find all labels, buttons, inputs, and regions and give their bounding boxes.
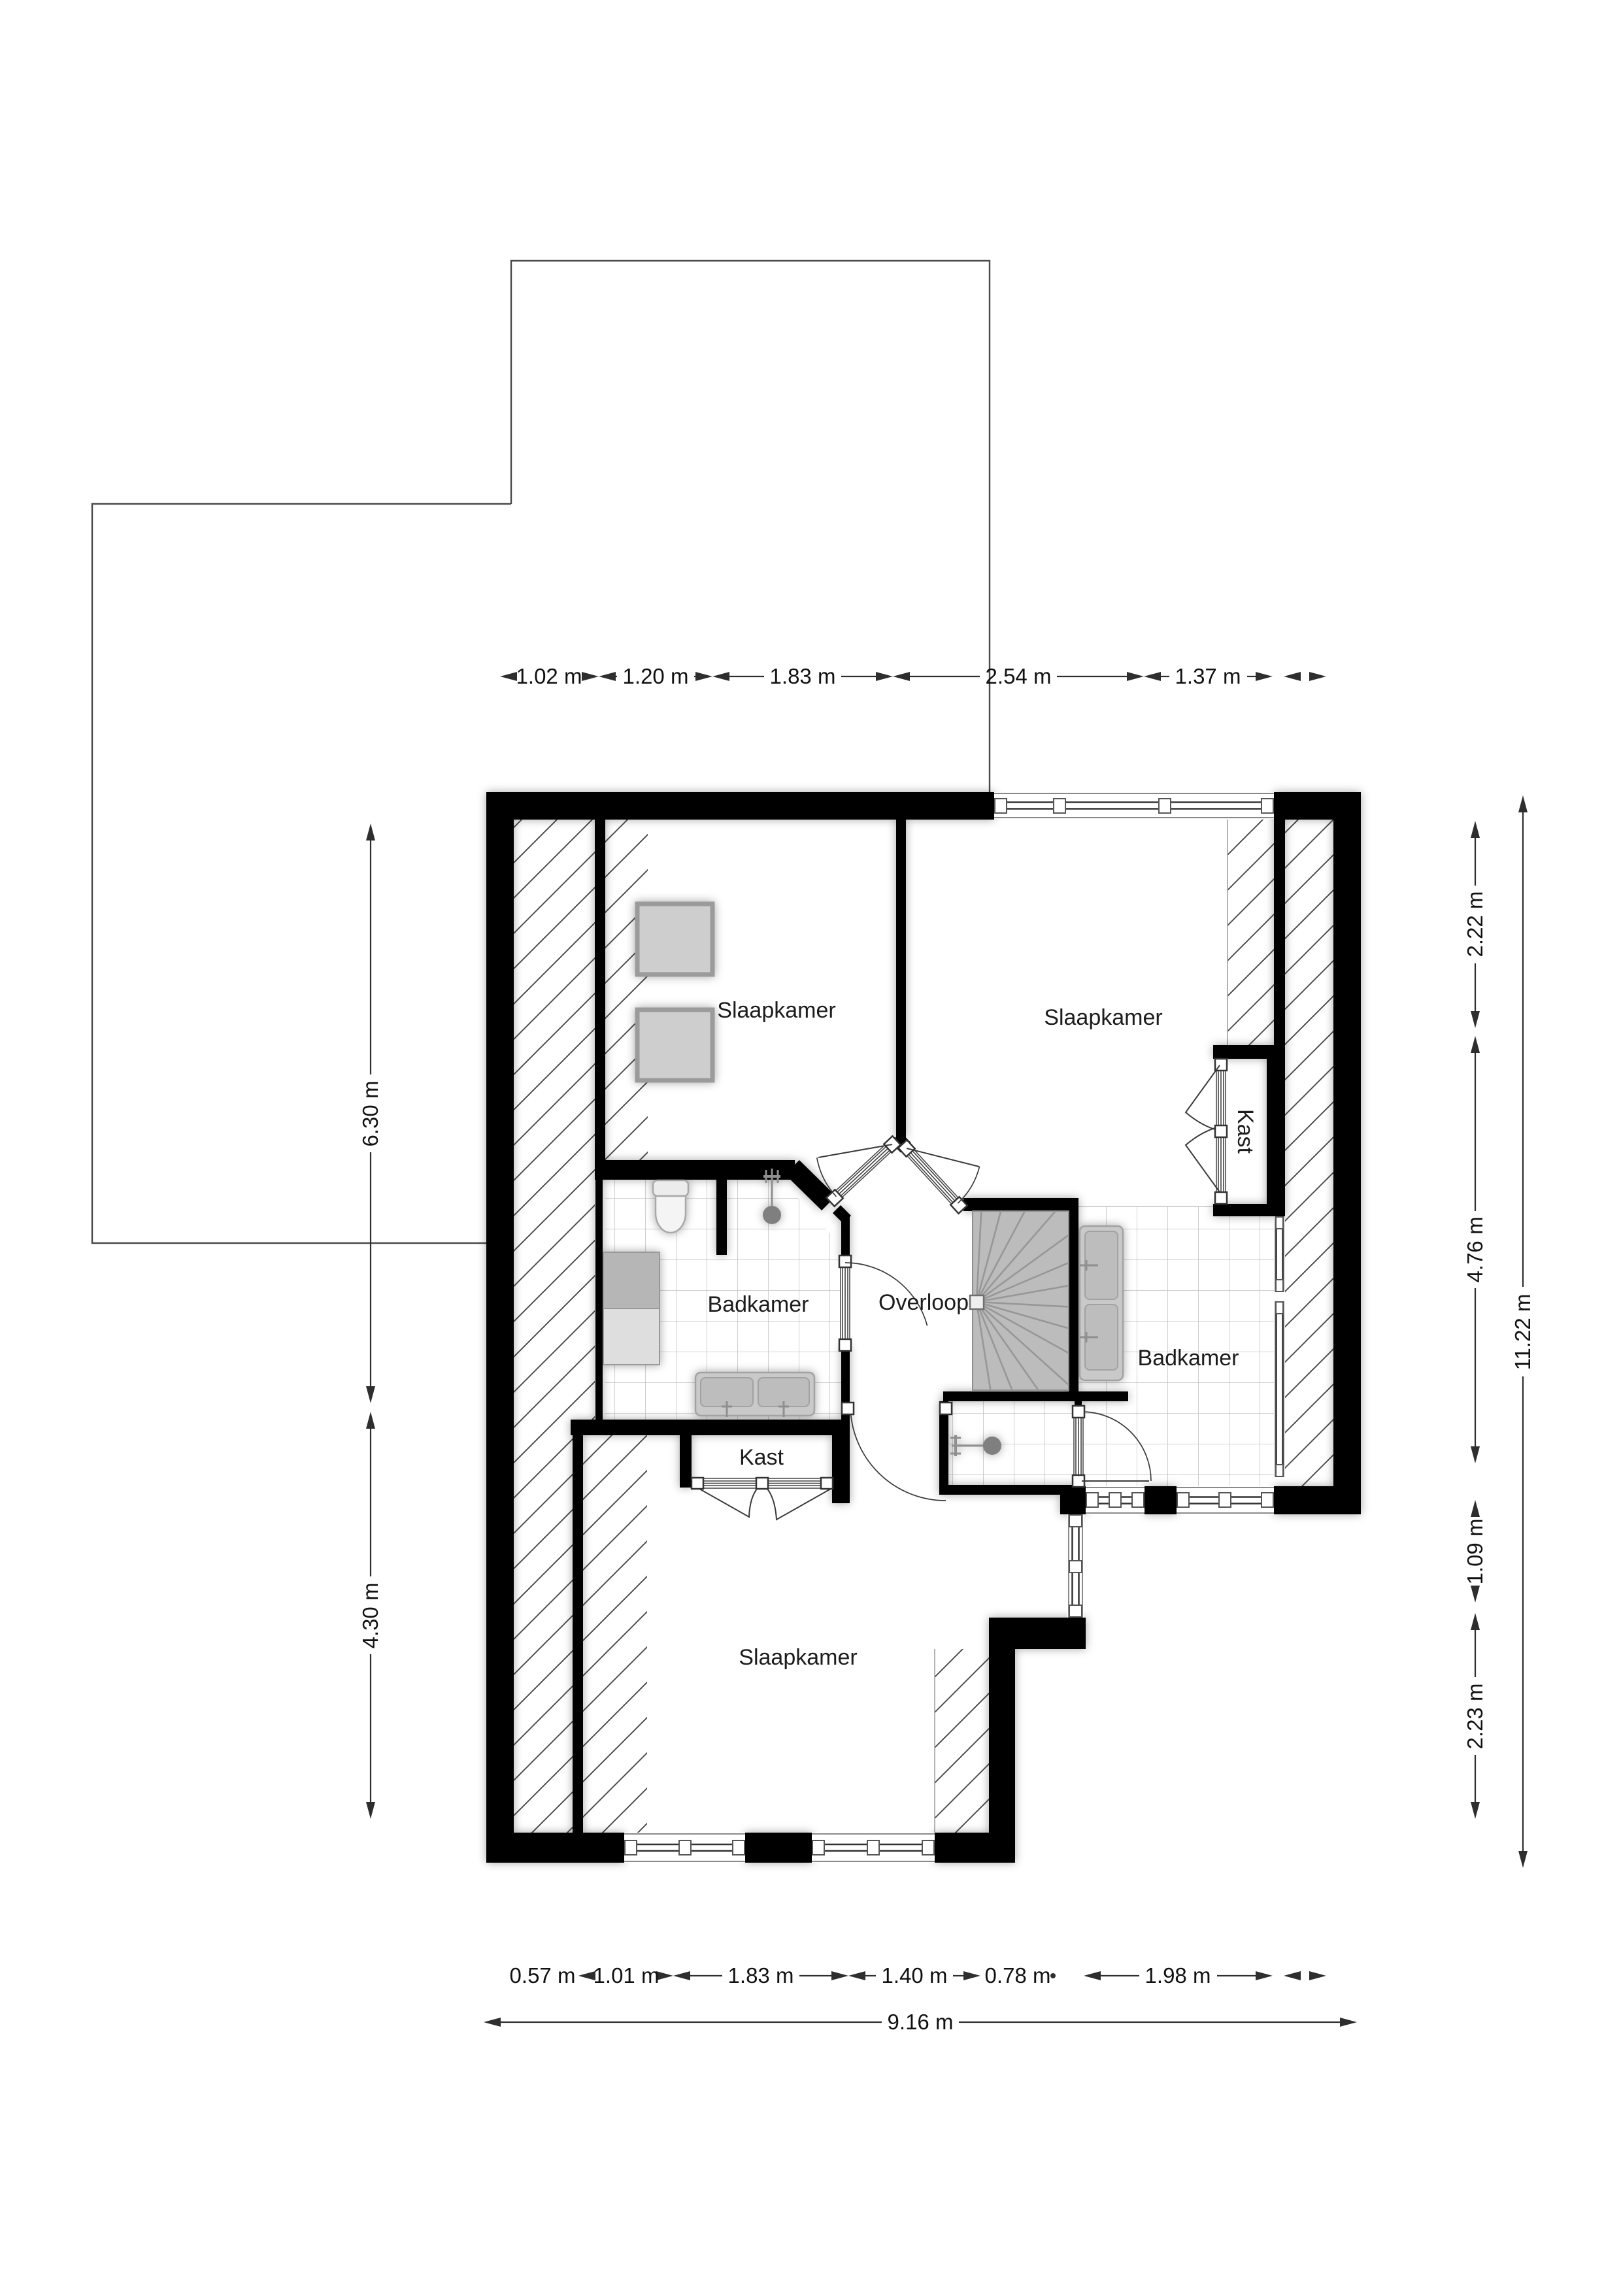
- svg-text:11.22 m: 11.22 m: [1511, 1294, 1535, 1371]
- svg-text:1.83 m: 1.83 m: [770, 664, 836, 688]
- svg-text:1.83 m: 1.83 m: [728, 1963, 794, 1988]
- svg-text:1.40 m: 1.40 m: [882, 1963, 948, 1988]
- svg-text:4.30 m: 4.30 m: [358, 1583, 382, 1649]
- svg-text:Slaapkamer: Slaapkamer: [717, 998, 835, 1023]
- svg-text:9.16 m: 9.16 m: [888, 2010, 954, 2034]
- svg-text:0.57 m: 0.57 m: [510, 1963, 576, 1988]
- svg-text:Kast: Kast: [1233, 1109, 1258, 1154]
- svg-text:0.78 m: 0.78 m: [985, 1963, 1051, 1988]
- svg-text:1.01 m: 1.01 m: [593, 1963, 660, 1988]
- svg-text:Overloop: Overloop: [878, 1290, 969, 1315]
- svg-text:1.09 m: 1.09 m: [1463, 1519, 1487, 1585]
- svg-text:4.76 m: 4.76 m: [1463, 1217, 1487, 1283]
- svg-text:Kast: Kast: [739, 1445, 784, 1470]
- svg-text:Slaapkamer: Slaapkamer: [739, 1645, 857, 1670]
- svg-text:Badkamer: Badkamer: [1138, 1346, 1239, 1371]
- svg-text:Badkamer: Badkamer: [708, 1292, 809, 1317]
- svg-text:1.37 m: 1.37 m: [1175, 664, 1241, 688]
- svg-text:2.22 m: 2.22 m: [1463, 891, 1487, 957]
- svg-text:2.54 m: 2.54 m: [986, 664, 1052, 688]
- svg-text:1.02 m: 1.02 m: [516, 664, 582, 688]
- svg-text:1.98 m: 1.98 m: [1145, 1963, 1211, 1988]
- svg-text:2.23 m: 2.23 m: [1463, 1684, 1487, 1750]
- svg-text:1.20 m: 1.20 m: [623, 664, 689, 688]
- svg-text:6.30 m: 6.30 m: [358, 1081, 382, 1147]
- svg-text:Slaapkamer: Slaapkamer: [1044, 1005, 1162, 1030]
